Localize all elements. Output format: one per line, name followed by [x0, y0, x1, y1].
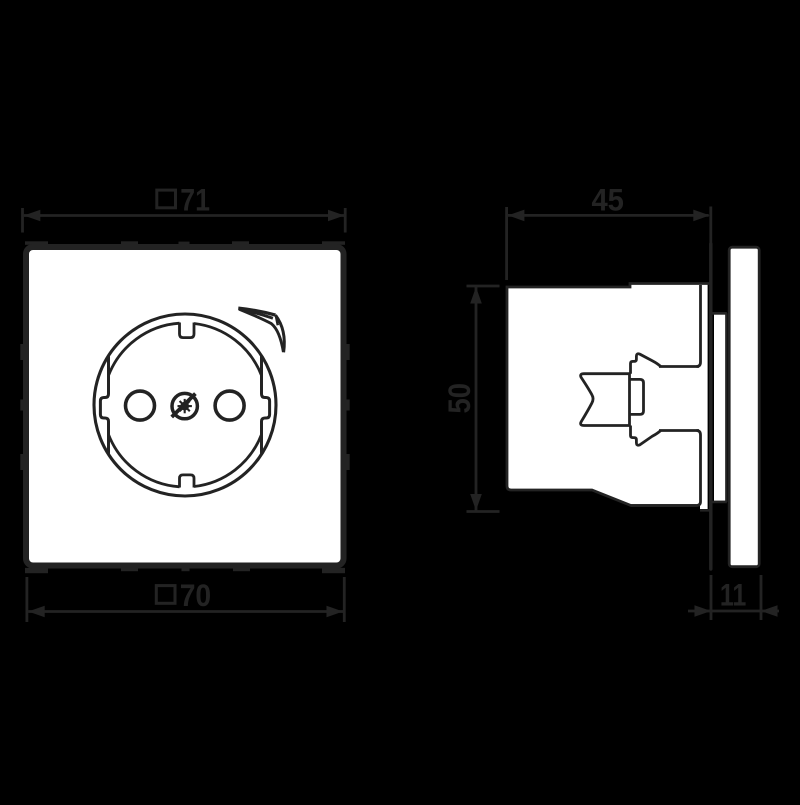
svg-text:45: 45 [591, 181, 624, 217]
svg-text:70: 70 [180, 577, 212, 613]
svg-text:11: 11 [720, 577, 747, 613]
svg-text:71: 71 [180, 181, 210, 217]
svg-text:50: 50 [441, 383, 477, 414]
